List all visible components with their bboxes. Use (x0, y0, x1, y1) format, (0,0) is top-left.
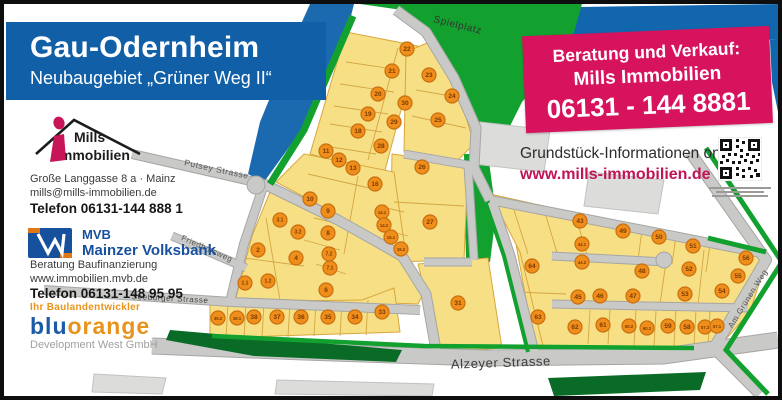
plot-marker: 45 (571, 290, 585, 304)
dark-green-band-bottom (548, 372, 706, 396)
plot-number: 53 (681, 291, 689, 298)
plot-marker: 39.2 (211, 311, 225, 325)
mills-email: mills@mills-immobilien.de (30, 186, 183, 200)
plot-number: 22 (403, 46, 411, 53)
plot-marker: 9 (321, 204, 335, 218)
building-block (92, 374, 166, 394)
plot-number: 47 (629, 293, 637, 300)
plot-marker: 18 (351, 124, 365, 138)
plot-number: 61 (599, 322, 607, 329)
plot-marker: 27 (423, 215, 437, 229)
plot-number: 12 (335, 157, 343, 164)
mvb-contact-block: Beratung Baufinanzierung www.immobilien.… (30, 258, 183, 301)
plot-number: 57.1 (713, 324, 722, 329)
plot-marker: 34 (348, 310, 362, 324)
mills-phone: Telefon 06131-144 888 1 (30, 202, 183, 216)
plot-marker: 19 (361, 107, 375, 121)
plot-marker: 60.1 (640, 321, 654, 335)
plot-marker: 26 (415, 160, 429, 174)
plot-marker: 58 (680, 320, 694, 334)
plot-number: 13 (349, 165, 357, 172)
plot-number: 44.2 (578, 260, 587, 265)
plot-marker: 35 (321, 310, 335, 324)
flyer: 222120191830292823242526271112131610914.… (0, 0, 782, 400)
street-label: Alzeyer Strasse (451, 353, 552, 371)
plot-marker: 52 (682, 262, 696, 276)
bluorange-tagline: Ihr Baulandentwickler (30, 302, 158, 313)
plot-number: 54 (718, 288, 726, 295)
online-info-line: Grundstück-Informationen online: (520, 143, 749, 164)
cul-de-sac-head (656, 252, 672, 268)
plot-number: 39.2 (214, 316, 223, 321)
plot-marker: 50 (652, 230, 666, 244)
plot-marker: 49 (616, 224, 630, 238)
mvb-abbr: MVB (82, 228, 216, 242)
mvb-website: www.immobilien.mvb.de (30, 272, 183, 286)
plot-number: 2 (256, 247, 260, 254)
plot-number: 56 (742, 255, 750, 262)
plot-number: 60.1 (643, 326, 652, 331)
plot-number: 3.1 (277, 218, 284, 224)
plot-marker: 38 (247, 310, 261, 324)
plot-marker: 24 (445, 89, 459, 103)
plot-marker: 2 (251, 243, 265, 257)
plot-number: 55 (734, 273, 742, 280)
plot-marker: 59 (661, 319, 675, 333)
plot-marker: 14.1 (375, 205, 389, 219)
plot-marker: 60.2 (622, 319, 636, 333)
plot-marker: 16 (368, 177, 382, 191)
plot-number: 37 (273, 314, 281, 321)
plot-number: 23 (425, 72, 433, 79)
plot-marker: 56 (739, 251, 753, 265)
plot-marker: 62 (568, 320, 582, 334)
plot-marker: 20 (371, 87, 385, 101)
mvb-line1: Beratung Baufinanzierung (30, 258, 183, 272)
plot-marker: 46 (593, 289, 607, 303)
page-subtitle: Neubaugebiet „Grüner Weg II“ (30, 68, 326, 89)
plot-number: 39.1 (233, 316, 242, 321)
plot-marker: 23 (422, 68, 436, 82)
plot-number: 62 (571, 324, 579, 331)
plot-number: 36 (297, 314, 305, 321)
plot-marker: 29 (387, 115, 401, 129)
plot-marker: 21 (385, 64, 399, 78)
plot-marker: 1.2 (261, 274, 275, 288)
plot-number: 8 (326, 230, 330, 237)
plot-number: 26 (418, 164, 426, 171)
plot-number: 45 (574, 294, 582, 301)
plot-number: 33 (378, 309, 386, 316)
plot-number: 19 (364, 111, 372, 118)
plot-number: 28 (377, 143, 385, 150)
qr-caption (704, 185, 776, 199)
plot-marker: 15.1 (384, 230, 398, 244)
plot-marker: 64 (525, 259, 539, 273)
plot-number: 15.1 (387, 235, 396, 240)
plot-number: 3.2 (295, 230, 302, 236)
plot-number: 58 (683, 324, 691, 331)
bluorange-brand: bluorange (30, 313, 158, 339)
plot-marker: 11 (319, 144, 333, 158)
plot-marker: 51 (686, 239, 700, 253)
mvb-block: MVB Mainzer Volksbank (28, 228, 216, 260)
plot-marker: 48 (635, 264, 649, 278)
plot-number: 27 (426, 219, 434, 226)
plot-number: 63 (534, 314, 542, 321)
plot-marker: 53 (678, 287, 692, 301)
plot-number: 34 (351, 314, 359, 321)
plot-number: 16 (371, 181, 379, 188)
mvb-phone: Telefon 06131-148 95 95 (30, 287, 183, 301)
plot-marker: 30 (398, 96, 412, 110)
page-title: Gau-Odernheim (30, 31, 326, 65)
plot-number: 31 (454, 300, 462, 307)
bluorange-subline: Development West GmbH (30, 339, 158, 351)
plot-number: 59 (664, 323, 672, 330)
plot-marker: 15.2 (394, 242, 408, 256)
plot-marker: 31 (451, 296, 465, 310)
building-block (275, 380, 434, 396)
mills-brand-top: Mills (74, 129, 105, 145)
plot-marker: 6 (319, 283, 333, 297)
plot-number: 29 (390, 119, 398, 126)
plot-marker: 47 (626, 289, 640, 303)
plot-marker: 44.2 (575, 255, 589, 269)
plot-marker: 3.1 (273, 213, 287, 227)
plot-marker: 4 (289, 251, 303, 265)
plot-number: 21 (388, 68, 396, 75)
plot-marker: 8 (321, 226, 335, 240)
plot-marker: 39.1 (230, 311, 244, 325)
mills-immobilien-logo: Mills Immobilien (28, 108, 178, 173)
plot-number: 44.1 (578, 242, 587, 247)
plot-marker: 25 (431, 113, 445, 127)
plot-number: 51 (689, 243, 697, 250)
plot-number: 49 (619, 228, 627, 235)
mills-address: Große Langgasse 8 a · Mainz (30, 172, 183, 186)
plot-number: 11 (323, 148, 330, 155)
plot-number: 52 (685, 266, 693, 273)
plot-number: 7.2 (326, 252, 333, 258)
plot-number: 18 (354, 128, 362, 135)
plot-number: 14.2 (380, 223, 389, 228)
mills-brand-bottom: Immobilien (56, 147, 130, 163)
mvb-logo-icon (28, 228, 74, 260)
plot-marker: 61 (596, 318, 610, 332)
plot-marker: 3.2 (291, 225, 305, 239)
website-url: www.mills-immobilien.de (520, 164, 749, 185)
title-box: Gau-Odernheim Neubaugebiet „Grüner Weg I… (6, 22, 326, 100)
mills-contact-block: Große Langgasse 8 a · Mainz mills@mills-… (30, 172, 183, 216)
plot-number: 9 (326, 208, 330, 215)
plot-marker: 7.1 (323, 261, 337, 275)
turning-circle (247, 176, 265, 194)
plot-number: 20 (374, 91, 382, 98)
contact-box: Beratung und Verkauf: Mills Immobilien 0… (522, 26, 773, 133)
plot-marker: 63 (531, 310, 545, 324)
plot-marker: 12 (332, 153, 346, 167)
qr-code (718, 137, 762, 186)
plot-marker: 55 (731, 269, 745, 283)
plot-number: 15.2 (397, 247, 406, 252)
plot-number: 64 (528, 263, 536, 270)
plot-number: 1.2 (265, 279, 272, 285)
plot-number: 10 (306, 196, 314, 203)
plot-number: 25 (434, 117, 442, 124)
plot-number: 38 (250, 314, 258, 321)
plot-number: 57.2 (701, 325, 710, 330)
plot-marker: 57.1 (710, 319, 724, 333)
plot-number: 7.1 (327, 266, 334, 272)
plot-marker: 54 (715, 284, 729, 298)
bluorange-block: Ihr Baulandentwickler bluorange Developm… (30, 302, 158, 351)
plot-marker: 37 (270, 310, 284, 324)
plot-number: 43 (576, 218, 584, 225)
plot-number: 46 (596, 293, 604, 300)
plot-marker: 28 (374, 139, 388, 153)
plot-marker: 13 (346, 161, 360, 175)
plot-number: 50 (655, 234, 663, 241)
plot-number: 14.1 (378, 210, 387, 215)
plot-marker: 33 (375, 305, 389, 319)
plot-number: 4 (294, 255, 298, 262)
plot-marker: 22 (400, 42, 414, 56)
plot-marker: 44.1 (575, 237, 589, 251)
plot-number: 1.1 (242, 281, 249, 287)
plot-marker: 7.2 (322, 247, 336, 261)
plot-marker: 36 (294, 310, 308, 324)
plot-number: 6 (324, 287, 328, 294)
plot-number: 30 (401, 100, 409, 107)
plot-marker: 10 (303, 192, 317, 206)
plot-marker: 43 (573, 214, 587, 228)
plot-number: 60.2 (625, 324, 634, 329)
plot-marker: 1.1 (238, 276, 252, 290)
online-info-block: Grundstück-Informationen online: www.mil… (520, 143, 749, 185)
plot-number: 24 (448, 93, 456, 100)
mvb-name: Mainzer Volksbank (82, 242, 216, 259)
plot-number: 48 (638, 268, 646, 275)
plot-number: 35 (324, 314, 332, 321)
